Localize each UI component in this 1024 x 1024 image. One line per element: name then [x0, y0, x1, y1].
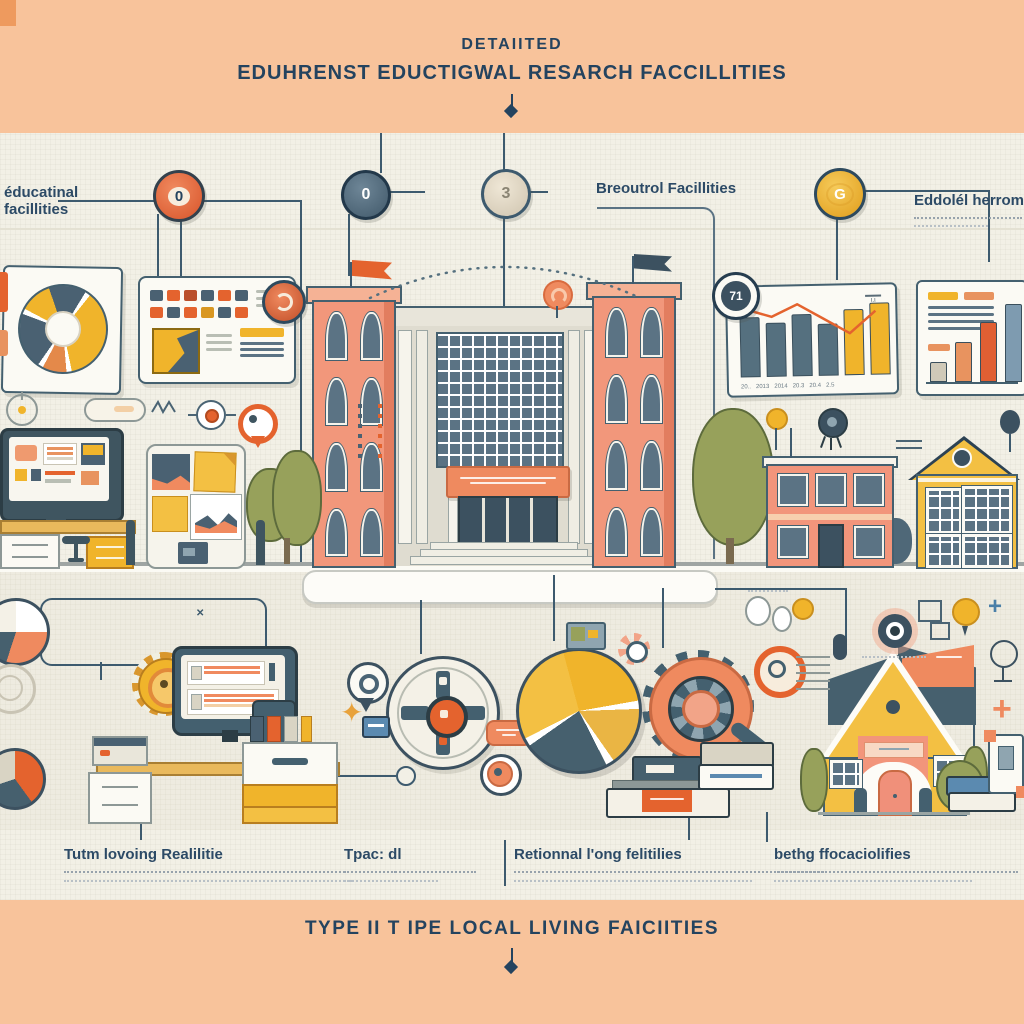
- gear-pink-icon: [618, 633, 650, 665]
- plus-orange-icon: +: [992, 694, 1012, 724]
- dark-pin-icon: [833, 634, 847, 660]
- connector: [180, 214, 182, 278]
- badge-beige: 3: [481, 169, 531, 219]
- pin-tail: [251, 436, 265, 448]
- dotted-arc: [365, 250, 645, 302]
- entrance-doors: [458, 496, 558, 546]
- bollard: [126, 520, 135, 565]
- balloon-outline-icon: [745, 596, 771, 626]
- phone-panel-icon: [988, 734, 1024, 794]
- caption-block-4: bethg ffocaciolifies: [774, 846, 1018, 882]
- badge-orange: 0: [153, 170, 205, 222]
- pin-outline-icon: [772, 606, 792, 632]
- pill-button: [84, 398, 146, 422]
- dotted-string: [378, 404, 382, 460]
- roof-vent: [952, 448, 972, 468]
- bush: [800, 748, 828, 812]
- dotted-string: [358, 404, 362, 460]
- note-yellow: [193, 451, 236, 492]
- badge-yellow: G: [814, 168, 866, 220]
- dot-pin-icon: [792, 598, 814, 620]
- compass-tab-blue: [362, 716, 390, 738]
- glass-facade: [436, 332, 564, 468]
- label-right-facilities: Eddolél herrom: [914, 192, 1024, 227]
- plus-blue-icon: +: [988, 596, 1002, 618]
- platform: [302, 570, 718, 604]
- mini-area-chart: [152, 328, 200, 374]
- bottom-banner: TYPE II T IPE LOCAL LIVING FAICIITIES: [0, 900, 1024, 1024]
- bottom-banner-title: TYPE II T IPE LOCAL LIVING FAICIITIES: [0, 918, 1024, 940]
- desk: [0, 520, 136, 534]
- banner-title-line2: EDUHRENST EDUCTIGWAL RESARCH FACCILLITIE…: [0, 62, 1024, 85]
- stool: [62, 536, 90, 544]
- badge-chart: 71: [712, 272, 760, 320]
- bollard: [256, 520, 265, 565]
- note-yellow-small: [152, 496, 188, 532]
- flow-square: [930, 622, 950, 640]
- note-chart: [190, 494, 242, 540]
- corner-accent: [0, 0, 16, 26]
- book: [948, 792, 1016, 812]
- cabinet-right: [242, 742, 338, 786]
- donut-chart: [17, 283, 109, 375]
- book-spine: [0, 272, 8, 312]
- balloon-dark-icon: [1000, 410, 1020, 434]
- book-spine: [0, 330, 8, 356]
- drawer-unit: [0, 534, 60, 569]
- balloon-yellow-icon: [766, 408, 788, 430]
- connector: [385, 191, 425, 193]
- swirl-balloon-icon: [543, 280, 573, 310]
- cabinet-left: [88, 772, 152, 824]
- tree: [272, 450, 322, 546]
- entrance-sign: [446, 466, 570, 498]
- yellow-house: [916, 474, 1018, 569]
- door: [878, 770, 912, 816]
- pie-chart: [516, 648, 642, 774]
- target-icon: [480, 754, 522, 796]
- chart-bars: [930, 300, 1022, 382]
- printer: [92, 736, 148, 766]
- right-tower: [592, 296, 676, 568]
- scribble-icon: [150, 398, 178, 416]
- note-slate: [152, 454, 190, 490]
- down-arrow-icon: [504, 104, 518, 118]
- badge-navy: 0: [341, 170, 391, 220]
- gable-vent: [886, 700, 900, 714]
- book: [606, 788, 730, 818]
- note-box: [178, 542, 208, 564]
- circle-stand-icon: [990, 640, 1018, 668]
- line-terminal: [396, 766, 416, 786]
- infographic-stage: DETAIITED EDUHRENST EDUCTIGWAL RESARCH F…: [0, 0, 1024, 1024]
- chart-ticks: 20..2013201420.320.42.5: [741, 383, 835, 391]
- door: [818, 524, 844, 568]
- x-mark: ✕: [196, 608, 204, 619]
- compass-center: [426, 696, 468, 738]
- hatch-lines: [796, 656, 830, 690]
- caption-block-2: Tpac: dl: [344, 846, 476, 882]
- eye-target-icon: [878, 614, 912, 648]
- connector: [380, 133, 382, 173]
- photo-icon: [566, 622, 606, 650]
- tree: [692, 408, 774, 546]
- left-tower: [312, 300, 396, 568]
- donut-chart-panel: [1, 265, 123, 395]
- swirl-badge: [262, 280, 306, 324]
- connector: [157, 214, 159, 278]
- monitor: [0, 428, 124, 522]
- tile-row: [150, 290, 248, 301]
- label-mid-facilities: Breoutrol Facillities: [596, 180, 736, 197]
- banner-title-line1: DETAIITED: [0, 36, 1024, 54]
- school-building: [766, 464, 894, 568]
- connector: [836, 214, 838, 280]
- flow-square: [918, 600, 942, 622]
- top-banner: DETAIITED EDUHRENST EDUCTIGWAL RESARCH F…: [0, 0, 1024, 133]
- bar-chart-panel: [916, 280, 1024, 396]
- power-icon: [6, 394, 38, 426]
- node-icon: [196, 400, 226, 430]
- label-educational-facilities: éducatinal facillities: [4, 184, 78, 218]
- down-arrow-icon: [504, 960, 518, 974]
- tile-row: [150, 307, 248, 318]
- compass-dial: [386, 656, 500, 770]
- bg-horizon-line: [0, 228, 1024, 230]
- bug-pin-icon: [952, 598, 980, 626]
- book: [698, 764, 774, 790]
- sticky-board: [146, 444, 246, 569]
- camera-ball-icon: [818, 408, 848, 438]
- books-on-cabinet: [250, 716, 312, 742]
